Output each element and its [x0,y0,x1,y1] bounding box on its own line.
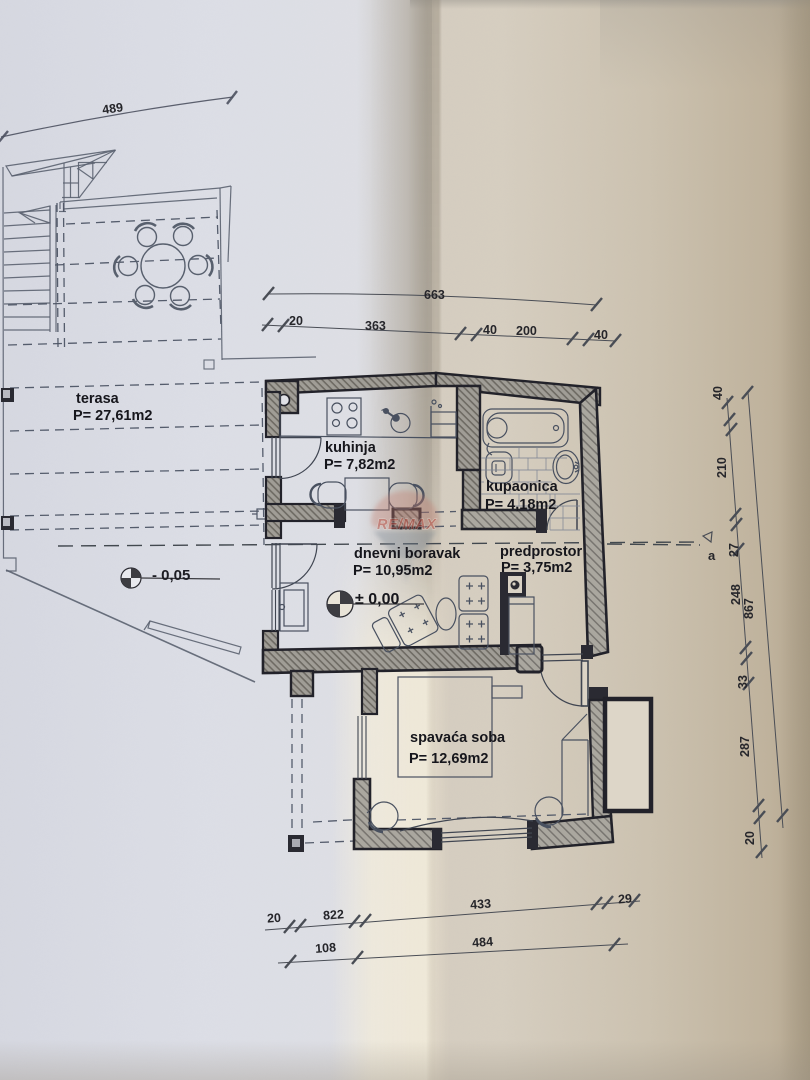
svg-text:P= 12,69m2: P= 12,69m2 [409,751,488,767]
svg-text:363: 363 [365,319,386,333]
svg-text:20: 20 [267,911,282,926]
svg-text:33: 33 [736,675,750,689]
svg-text:± 0,00: ± 0,00 [355,591,399,608]
svg-text:P= 4,18m2: P= 4,18m2 [485,497,556,513]
svg-text:27: 27 [727,543,741,557]
svg-text:20: 20 [743,831,757,845]
svg-text:489: 489 [101,100,124,117]
svg-text:822: 822 [323,907,345,922]
svg-text:210: 210 [715,457,729,478]
svg-text:terasa: terasa [76,391,120,407]
svg-text:- 0,05: - 0,05 [152,567,190,584]
svg-text:248: 248 [729,584,743,605]
svg-text:P= 27,61m2: P= 27,61m2 [73,408,152,424]
svg-text:20: 20 [289,314,303,328]
svg-text:40: 40 [483,323,497,337]
svg-text:kupaonica: kupaonica [486,479,559,495]
svg-text:RE/MAX: RE/MAX [377,517,437,533]
svg-text:a: a [708,548,716,563]
svg-text:200: 200 [516,324,537,338]
svg-text:40: 40 [594,328,608,342]
svg-text:29: 29 [618,892,633,907]
svg-text:P= 3,75m2: P= 3,75m2 [501,560,572,576]
svg-text:108: 108 [315,940,337,955]
svg-text:kuhinja: kuhinja [325,440,377,456]
svg-text:287: 287 [738,736,752,757]
svg-text:spavaća soba: spavaća soba [410,730,506,746]
svg-text:433: 433 [470,897,492,912]
svg-text:867: 867 [742,598,756,619]
svg-text:P= 10,95m2: P= 10,95m2 [353,563,432,579]
svg-text:dnevni boravak: dnevni boravak [354,546,461,562]
svg-text:40: 40 [711,386,725,400]
svg-text:P= 7,82m2: P= 7,82m2 [324,457,395,473]
svg-text:484: 484 [472,935,494,950]
svg-text:663: 663 [424,288,445,302]
svg-text:predprostor: predprostor [500,544,583,560]
